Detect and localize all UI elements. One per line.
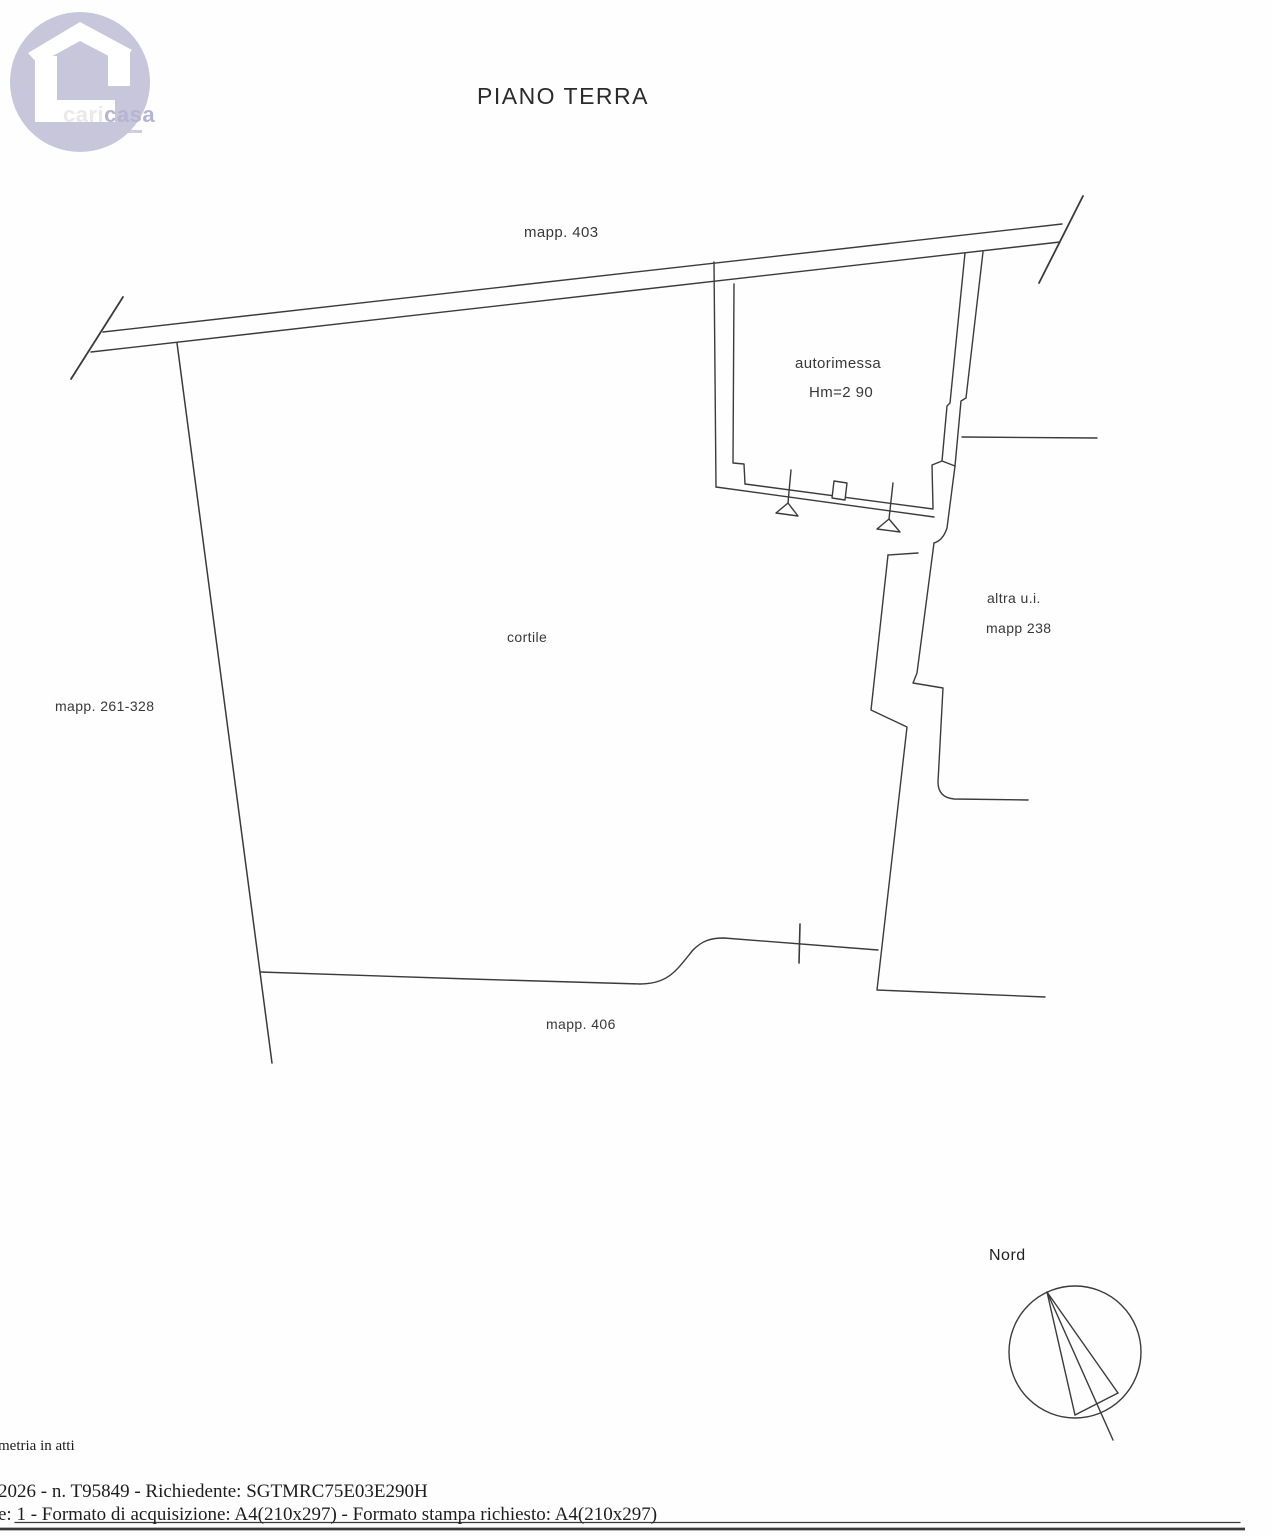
door-swing-icon-right — [877, 519, 900, 532]
footer-planimetria-note: metria in atti — [0, 1438, 75, 1455]
south-boundary-tick — [799, 924, 800, 963]
label-mapp-238: mapp 238 — [986, 620, 1051, 636]
boundary-end-tick-left — [71, 297, 123, 379]
south-parcel-boundary — [260, 938, 878, 984]
label-autorimessa-height: Hm=2 90 — [809, 384, 873, 401]
garage-right-wall-inner — [932, 253, 965, 508]
compass-circle — [1009, 1286, 1141, 1418]
label-mapp-403: mapp. 403 — [524, 224, 598, 241]
label-mapp-261-328: mapp. 261-328 — [55, 698, 154, 714]
west-parcel-boundary — [177, 343, 272, 1063]
footer-format-info: e: 1 - Formato di acquisizione: A4(210x2… — [0, 1504, 657, 1526]
road-boundary-lower-line — [91, 242, 1060, 352]
footer-request-info: 2026 - n. T95849 - Richiedente: SGTMRC75… — [0, 1481, 428, 1503]
door-swing-icon-left — [776, 503, 798, 516]
label-autorimessa: autorimessa — [795, 355, 881, 372]
wall-pillar — [832, 481, 847, 500]
garage-bottom-wall-lower — [716, 487, 934, 517]
compass-north-label: Nord — [989, 1247, 1026, 1265]
east-reference-line — [962, 437, 1097, 438]
garage-left-wall-outer — [714, 262, 716, 487]
label-cortile: cortile — [507, 629, 547, 645]
scanned-cadastral-plan-page: caricasa PIANO TERRA — [0, 0, 1271, 1536]
garage-right-wall-outer — [934, 252, 983, 543]
floor-plan-drawing — [0, 0, 1271, 1536]
compass-needle-right-edge — [1047, 1292, 1118, 1393]
boundary-end-tick-right — [1039, 196, 1083, 283]
door-jamb-left — [788, 470, 791, 503]
garage-left-wall-inner — [733, 284, 745, 484]
label-mapp-406: mapp. 406 — [546, 1016, 616, 1032]
door-jamb-right — [889, 483, 893, 519]
east-boundary-inner — [913, 543, 1028, 800]
garage-right-wall-cap — [942, 461, 955, 466]
compass-rose — [1009, 1286, 1141, 1440]
compass-needle-left-edge — [1047, 1292, 1075, 1415]
label-altra-ui: altra u.i. — [987, 590, 1041, 606]
east-boundary-connector — [888, 553, 918, 555]
